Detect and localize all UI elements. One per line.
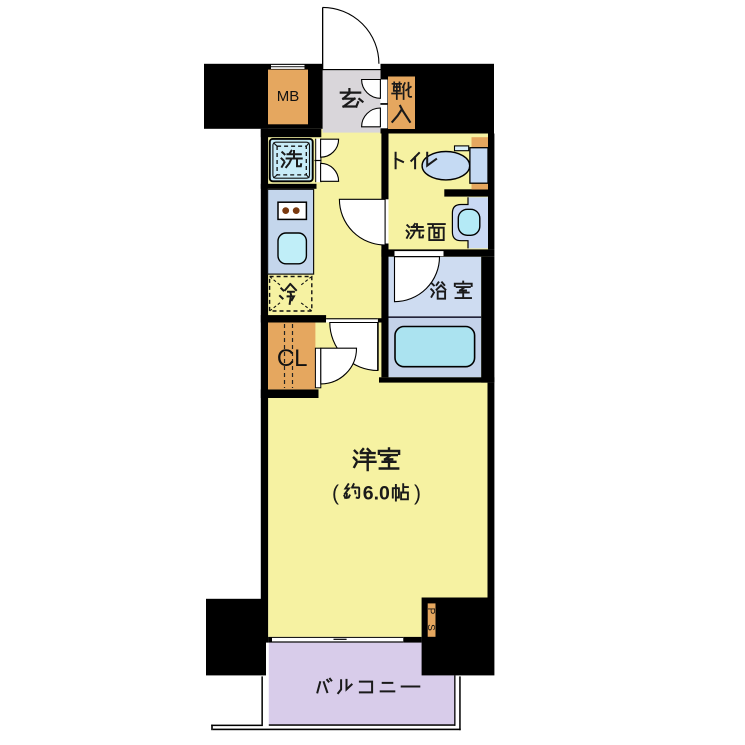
svg-text:6.0: 6.0 (363, 483, 390, 505)
svg-text:P: P (425, 608, 436, 615)
svg-text:MB: MB (277, 88, 300, 105)
svg-text:(: ( (332, 482, 339, 505)
svg-text:CL: CL (277, 345, 308, 372)
svg-text:): ) (414, 482, 421, 505)
svg-text:S: S (425, 624, 436, 631)
